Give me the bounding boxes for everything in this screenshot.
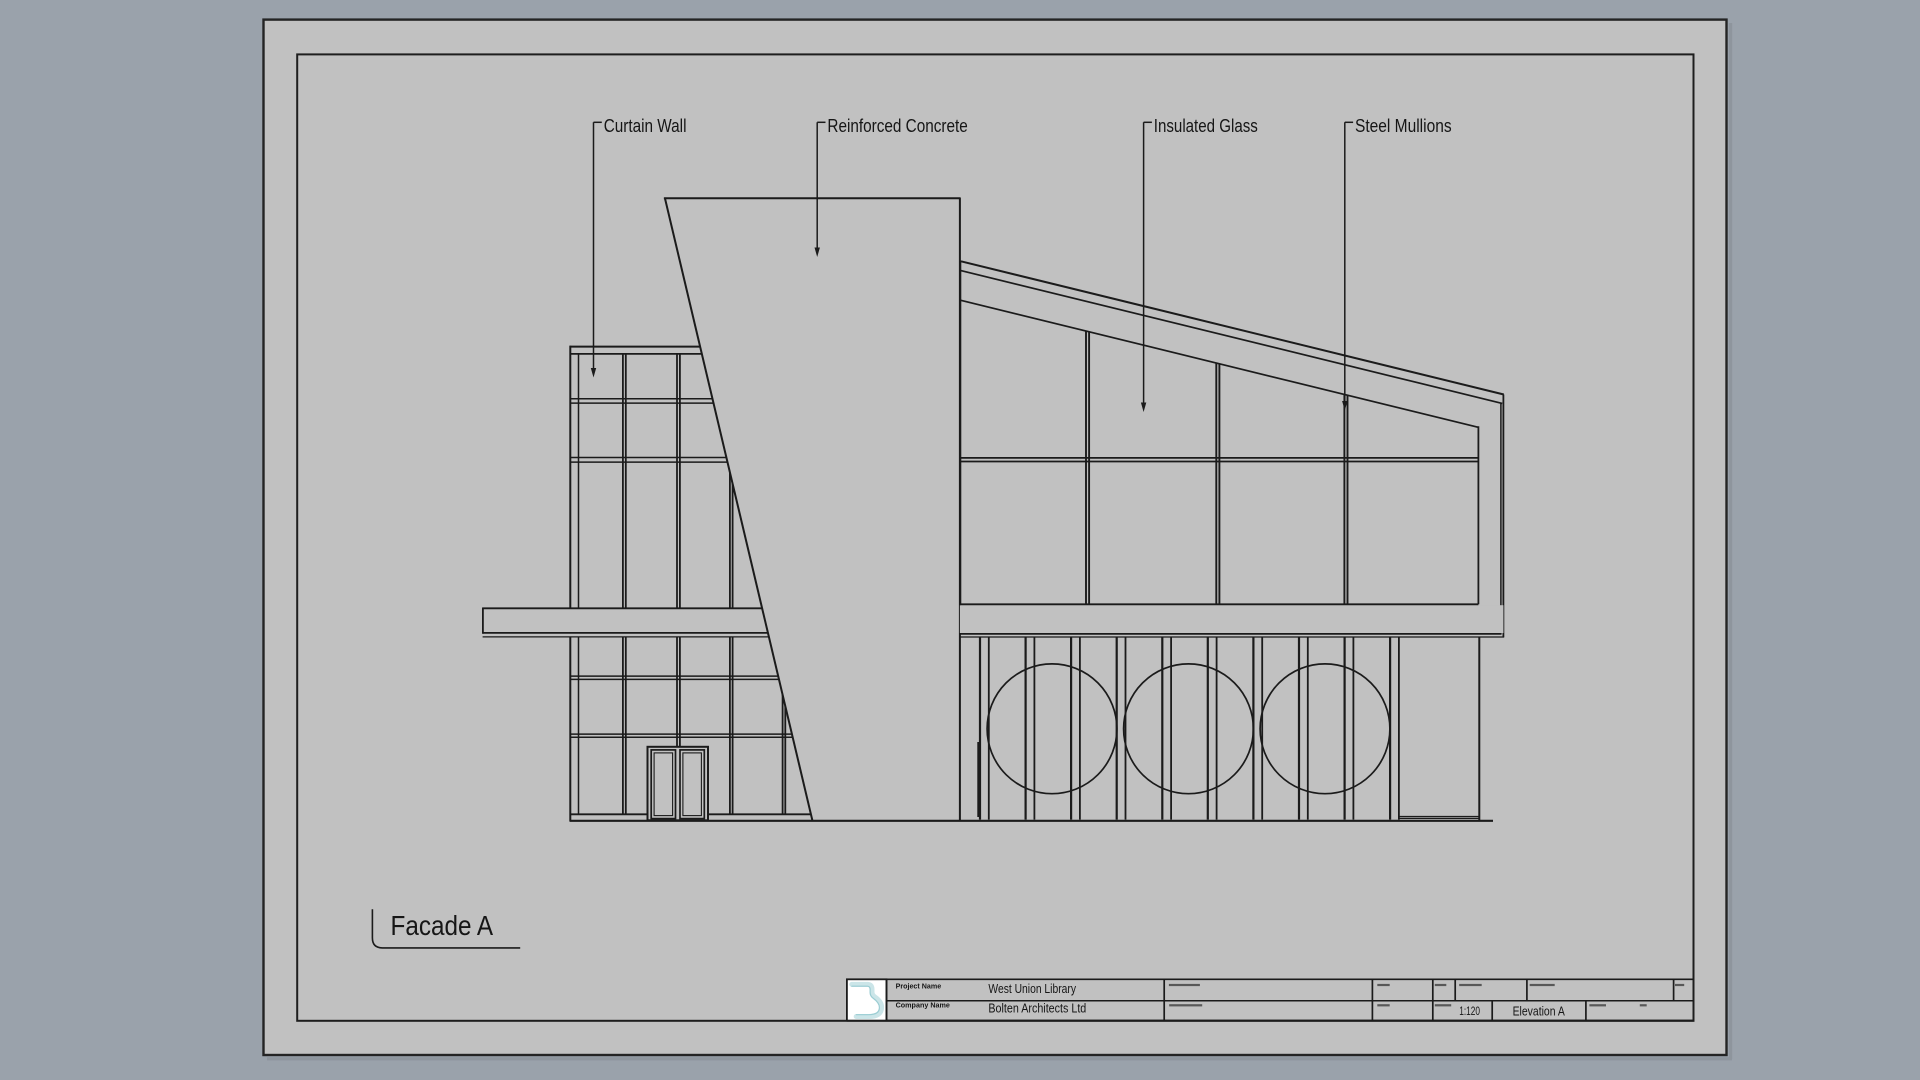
svg-text:Elevation A: Elevation A [1513, 1004, 1566, 1018]
svg-text:Facade A: Facade A [391, 909, 494, 941]
svg-text:Insulated Glass: Insulated Glass [1154, 115, 1258, 136]
svg-text:Project Name: Project Name [896, 982, 942, 991]
svg-text:West Union Library: West Union Library [988, 982, 1076, 996]
svg-text:Company Name: Company Name [896, 1000, 950, 1009]
svg-text:1:120: 1:120 [1459, 1006, 1480, 1018]
svg-text:Bolten Architects Ltd: Bolten Architects Ltd [988, 1002, 1086, 1016]
svg-text:Curtain Wall: Curtain Wall [604, 115, 687, 136]
svg-text:Reinforced Concrete: Reinforced Concrete [827, 115, 967, 136]
svg-text:Steel Mullions: Steel Mullions [1355, 115, 1452, 136]
